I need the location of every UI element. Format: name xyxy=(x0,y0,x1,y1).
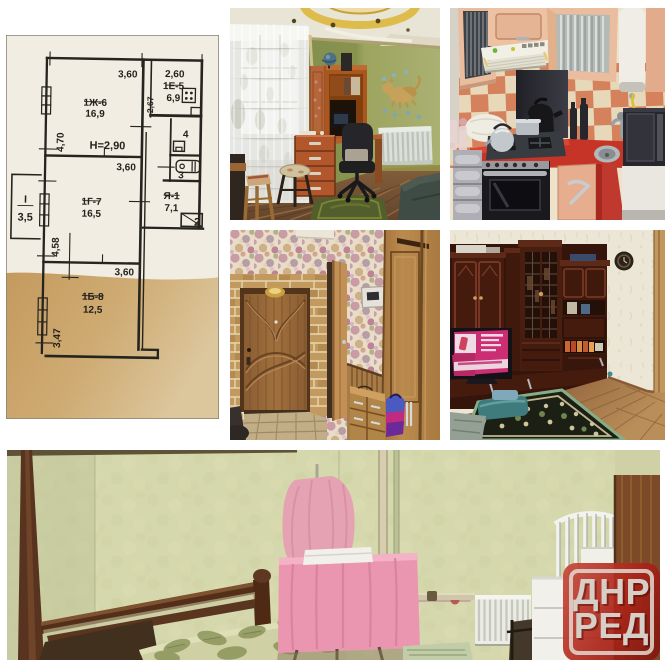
svg-text:I: I xyxy=(24,194,27,206)
svg-text:7,1: 7,1 xyxy=(164,203,179,214)
svg-text:3,5: 3,5 xyxy=(17,211,33,223)
svg-text:1Г-7: 1Г-7 xyxy=(81,197,102,208)
svg-text:4: 4 xyxy=(183,129,189,140)
svg-text:16,5: 16,5 xyxy=(81,209,101,220)
svg-text:3,60: 3,60 xyxy=(116,162,136,173)
svg-text:1Б-8: 1Б-8 xyxy=(82,292,104,303)
svg-text:2: 2 xyxy=(194,217,200,229)
svg-text:3: 3 xyxy=(178,170,184,181)
svg-text:Н=2,90: Н=2,90 xyxy=(89,140,125,153)
svg-text:Я-1: Я-1 xyxy=(163,191,180,202)
svg-text:4,58: 4,58 xyxy=(51,237,62,257)
svg-text:3,60: 3,60 xyxy=(114,267,134,278)
svg-text:16,9: 16,9 xyxy=(85,109,105,120)
svg-text:1Ж-6: 1Ж-6 xyxy=(83,98,107,109)
svg-text:3,47: 3,47 xyxy=(52,328,63,348)
svg-text:2,60: 2,60 xyxy=(165,69,185,80)
svg-text:2,67: 2,67 xyxy=(145,96,155,113)
svg-text:12,5: 12,5 xyxy=(83,305,103,316)
svg-text:1Е-5: 1Е-5 xyxy=(163,81,185,92)
svg-text:6,9: 6,9 xyxy=(166,93,181,104)
svg-text:4,70: 4,70 xyxy=(55,132,66,152)
svg-text:3,60: 3,60 xyxy=(118,69,138,80)
